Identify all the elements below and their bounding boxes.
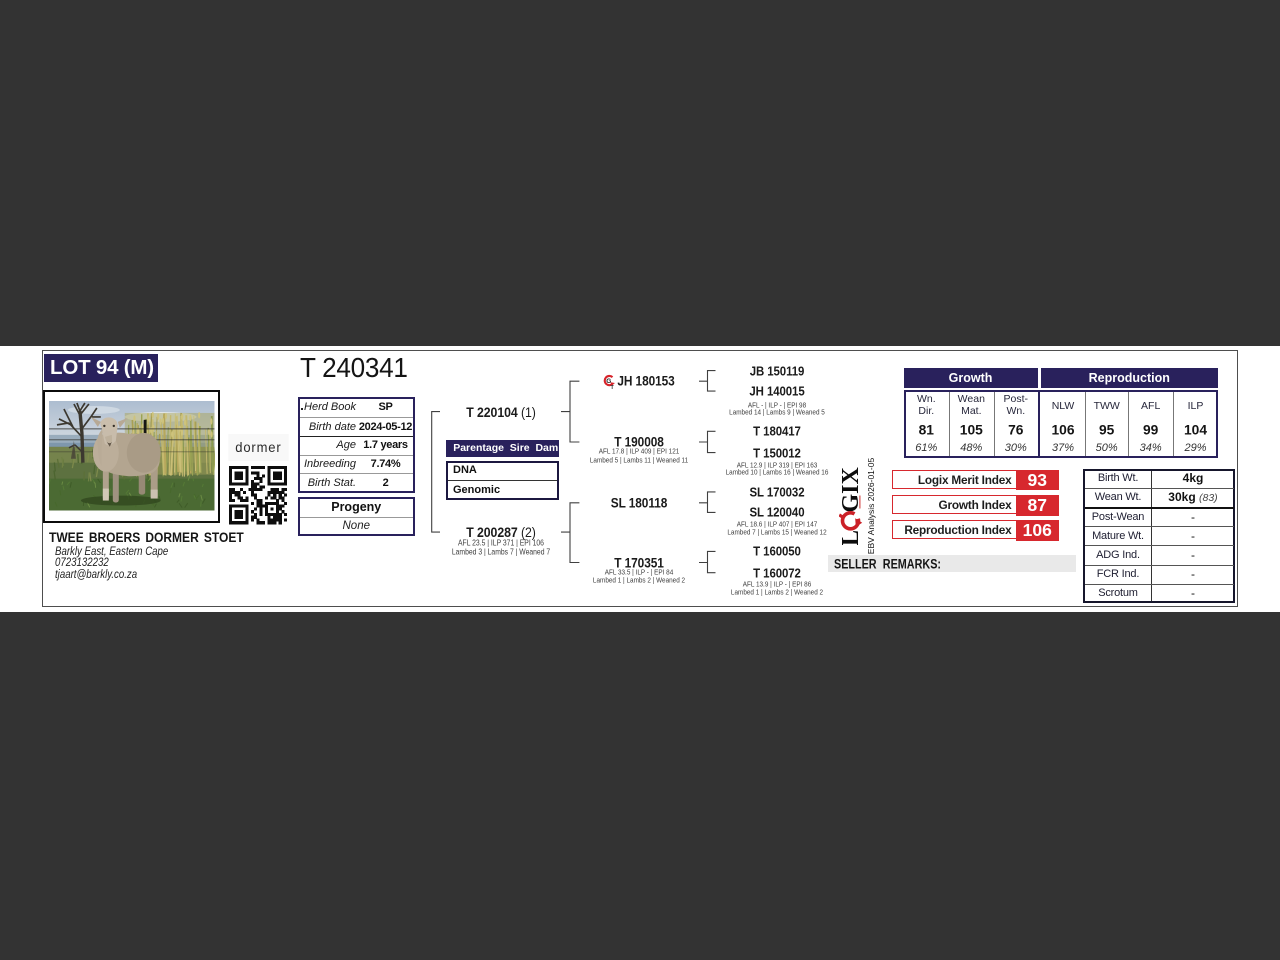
svg-text:T: T	[611, 385, 614, 390]
